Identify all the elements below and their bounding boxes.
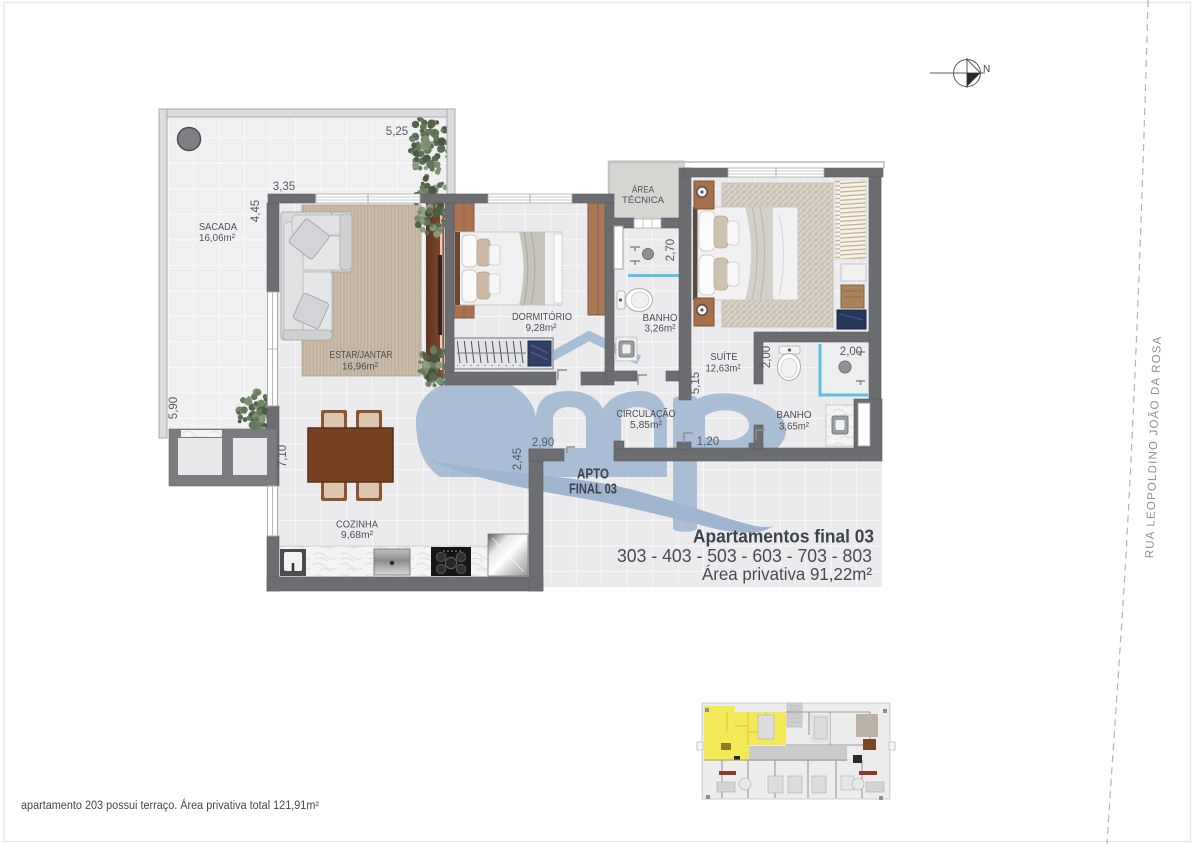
svg-text:4,45: 4,45 (250, 200, 262, 222)
svg-text:5,25: 5,25 (386, 126, 408, 138)
svg-text:ESTAR/JANTAR: ESTAR/JANTAR (330, 350, 393, 361)
svg-text:COZINHA: COZINHA (336, 520, 378, 531)
svg-text:5,90: 5,90 (168, 397, 180, 419)
svg-text:9,28m²: 9,28m² (526, 323, 558, 334)
svg-text:3,65m²: 3,65m² (779, 422, 810, 433)
svg-text:3,26m²: 3,26m² (645, 324, 677, 335)
svg-text:Área privativa 91,22m²: Área privativa 91,22m² (702, 564, 872, 584)
svg-text:2,45: 2,45 (512, 448, 524, 470)
svg-text:SACADA: SACADA (199, 222, 237, 233)
svg-text:3,35: 3,35 (273, 181, 295, 193)
svg-text:1,20: 1,20 (697, 436, 719, 448)
svg-text:7,10: 7,10 (277, 445, 289, 467)
svg-text:TÉCNICA: TÉCNICA (622, 195, 664, 205)
svg-text:303 - 403 - 503 - 603 - 703 -: 303 - 403 - 503 - 603 - 703 - 803 (617, 546, 872, 566)
svg-text:CIRCULAÇÃO: CIRCULAÇÃO (617, 407, 676, 420)
svg-text:9,68m²: 9,68m² (341, 530, 374, 541)
svg-text:2,90: 2,90 (532, 437, 554, 449)
svg-text:Apartamentos final 03: Apartamentos final 03 (693, 527, 874, 547)
svg-text:BANHO: BANHO (643, 313, 678, 324)
svg-text:BANHO: BANHO (777, 410, 812, 421)
svg-text:16,06m²: 16,06m² (199, 233, 236, 244)
svg-text:apartamento 203 possui terraço: apartamento 203 possui terraço. Área pri… (21, 799, 319, 812)
svg-text:APTO: APTO (577, 467, 609, 483)
svg-text:N: N (983, 64, 990, 75)
svg-text:DORMITÓRIO: DORMITÓRIO (512, 310, 572, 323)
svg-text:5,15: 5,15 (690, 372, 702, 394)
svg-text:ÁREA: ÁREA (632, 185, 654, 195)
svg-text:2,00: 2,00 (761, 346, 773, 368)
svg-text:5,85m²: 5,85m² (630, 420, 663, 431)
svg-text:FINAL 03: FINAL 03 (569, 482, 617, 498)
svg-text:16,96m²: 16,96m² (342, 362, 379, 373)
svg-text:2,70: 2,70 (665, 239, 677, 261)
svg-text:12,63m²: 12,63m² (706, 364, 742, 375)
svg-text:SUÍTE: SUÍTE (711, 350, 738, 363)
svg-text:2,00: 2,00 (840, 346, 862, 358)
